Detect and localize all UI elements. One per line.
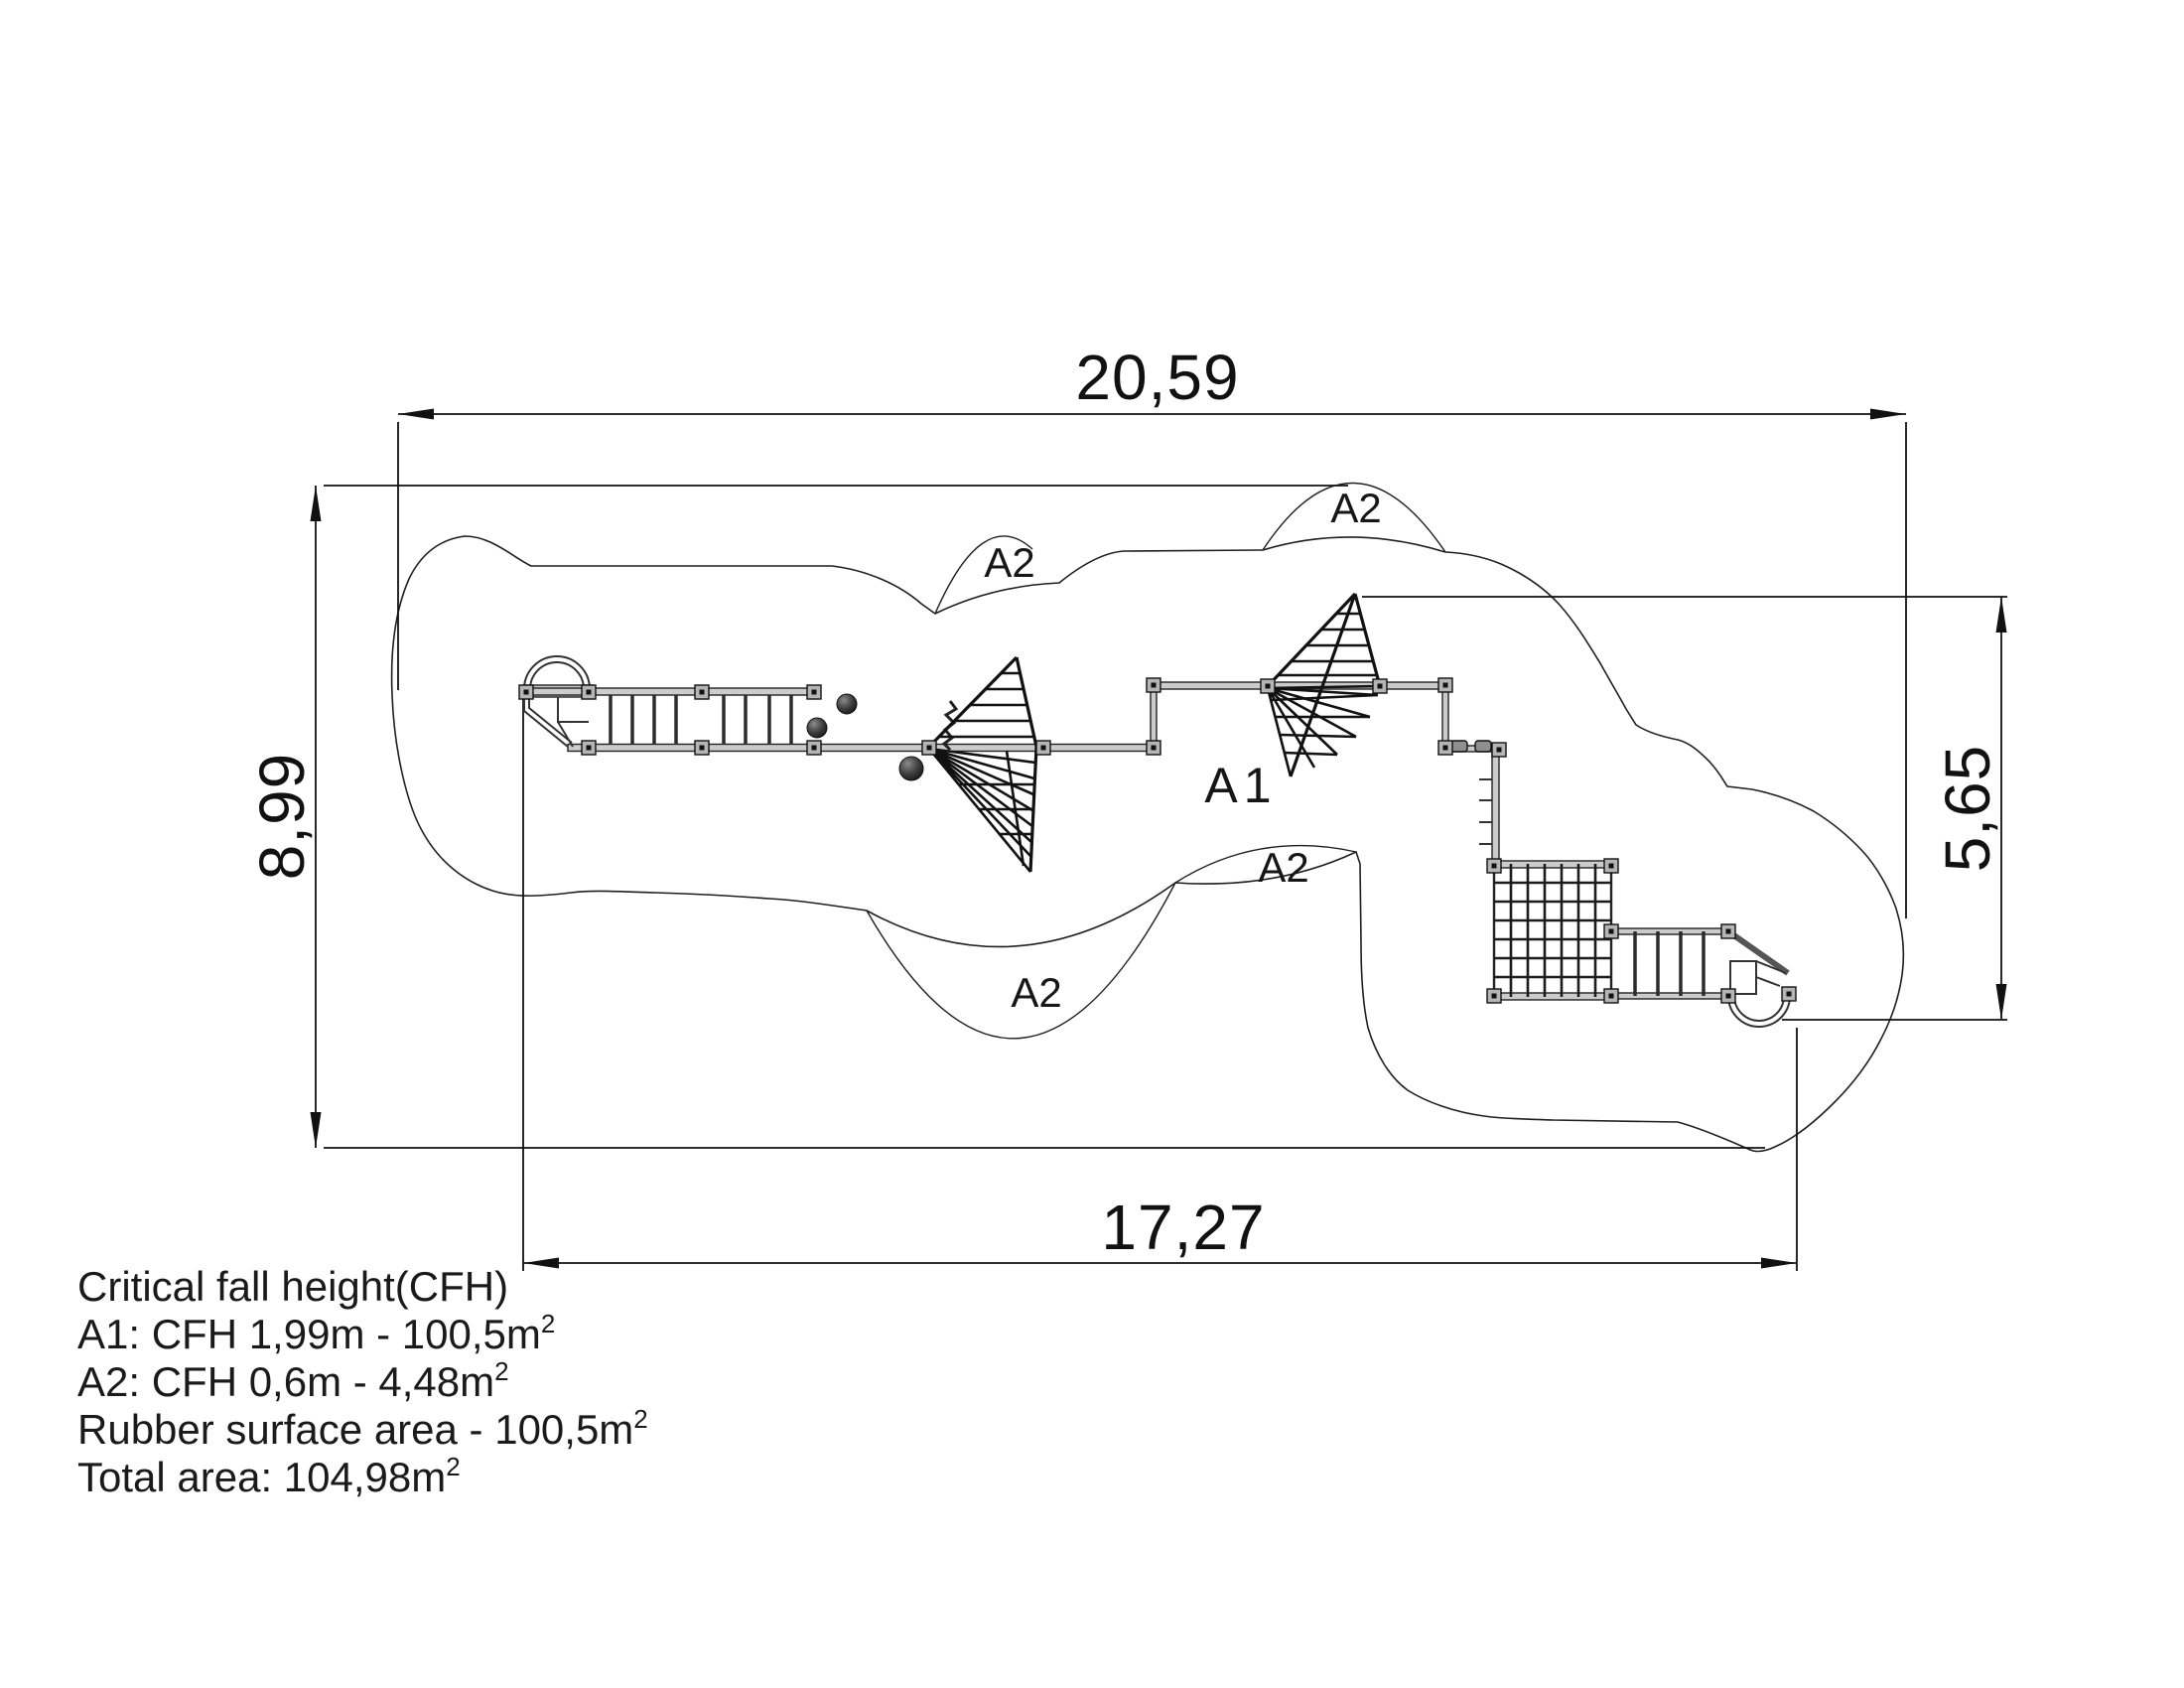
post-marker-center (1726, 994, 1731, 999)
dimension-equipment-width: 17,27 (523, 698, 1797, 1271)
dim-overall-width-value: 20,59 (1075, 342, 1239, 413)
post-marker-center (700, 746, 705, 751)
post-marker-center (1492, 994, 1497, 999)
plan-drawing-sheet: 20,59 8,99 5,65 17,27 (0, 0, 2184, 1688)
stairs (1611, 928, 1728, 999)
post-marker-center (812, 746, 817, 751)
climbing-wall (1492, 751, 1499, 866)
playground-plan-svg: 20,59 8,99 5,65 17,27 (0, 0, 2184, 1688)
post-marker-center (1443, 746, 1448, 751)
post-marker-center (1726, 929, 1731, 934)
net-floor-platform (1494, 861, 1611, 1000)
post-marker-center (524, 690, 529, 695)
dim-right-height-value: 5,65 (1932, 745, 2003, 873)
monkey-bar-bridge (523, 656, 1158, 780)
stepping-pod (1475, 741, 1491, 752)
dim-equipment-width-value: 17,27 (1101, 1192, 1265, 1263)
note-line-3: A2: CFH 0,6m - 4,48m2 (77, 1356, 509, 1405)
climbing-net-left (929, 657, 1036, 872)
zone-label-a2-middle-right: A2 (1258, 844, 1308, 891)
post-marker-center (1041, 746, 1046, 751)
post-marker-center (1609, 929, 1614, 934)
support-posts (519, 678, 1796, 1003)
post-marker-center (927, 746, 932, 751)
arch-climber (524, 656, 590, 689)
dimension-overall-width: 20,59 (398, 342, 1906, 918)
zone-label-a2-top: A2 (1330, 485, 1381, 531)
post-marker-center (1443, 683, 1448, 688)
post-marker-center (812, 690, 817, 695)
post-marker-center (1497, 748, 1502, 753)
entry-ramp (524, 697, 589, 747)
zone-label-a1: A1 (1204, 758, 1277, 813)
cloud-outline (392, 536, 1904, 1151)
stepping-pod (1451, 741, 1467, 752)
zone-label-a2-bottom: A2 (1011, 969, 1061, 1016)
note-line-1: Critical fall height(CFH) (77, 1263, 508, 1310)
note-line-5: Total area: 104,98m2 (77, 1452, 461, 1500)
post-marker-center (1266, 684, 1271, 689)
dimension-right-height: 5,65 (1362, 597, 2007, 1020)
zone-label-a2-middle-top: A2 (984, 539, 1034, 586)
cfh-notes: Critical fall height(CFH) A1: CFH 1,99m … (77, 1263, 648, 1500)
post-marker-center (700, 690, 705, 695)
post-marker-center (1787, 992, 1792, 997)
post-marker-center (1609, 864, 1614, 869)
post-marker-center (1378, 684, 1383, 689)
tower-structure (1479, 751, 1790, 1027)
post-marker-center (1492, 864, 1497, 869)
note-line-4: Rubber surface area - 100,5m2 (77, 1404, 648, 1453)
rubber-surface-area (392, 483, 1904, 1151)
post-marker-center (1152, 746, 1157, 751)
slide-exit (1728, 931, 1790, 1027)
post-marker-center (1152, 683, 1157, 688)
dim-overall-depth-value: 8,99 (246, 753, 318, 881)
note-line-2: A1: CFH 1,99m - 100,5m2 (77, 1309, 555, 1357)
post-marker-center (587, 746, 592, 751)
post-marker-center (587, 690, 592, 695)
post-marker-center (1609, 994, 1614, 999)
play-balls (807, 694, 923, 780)
